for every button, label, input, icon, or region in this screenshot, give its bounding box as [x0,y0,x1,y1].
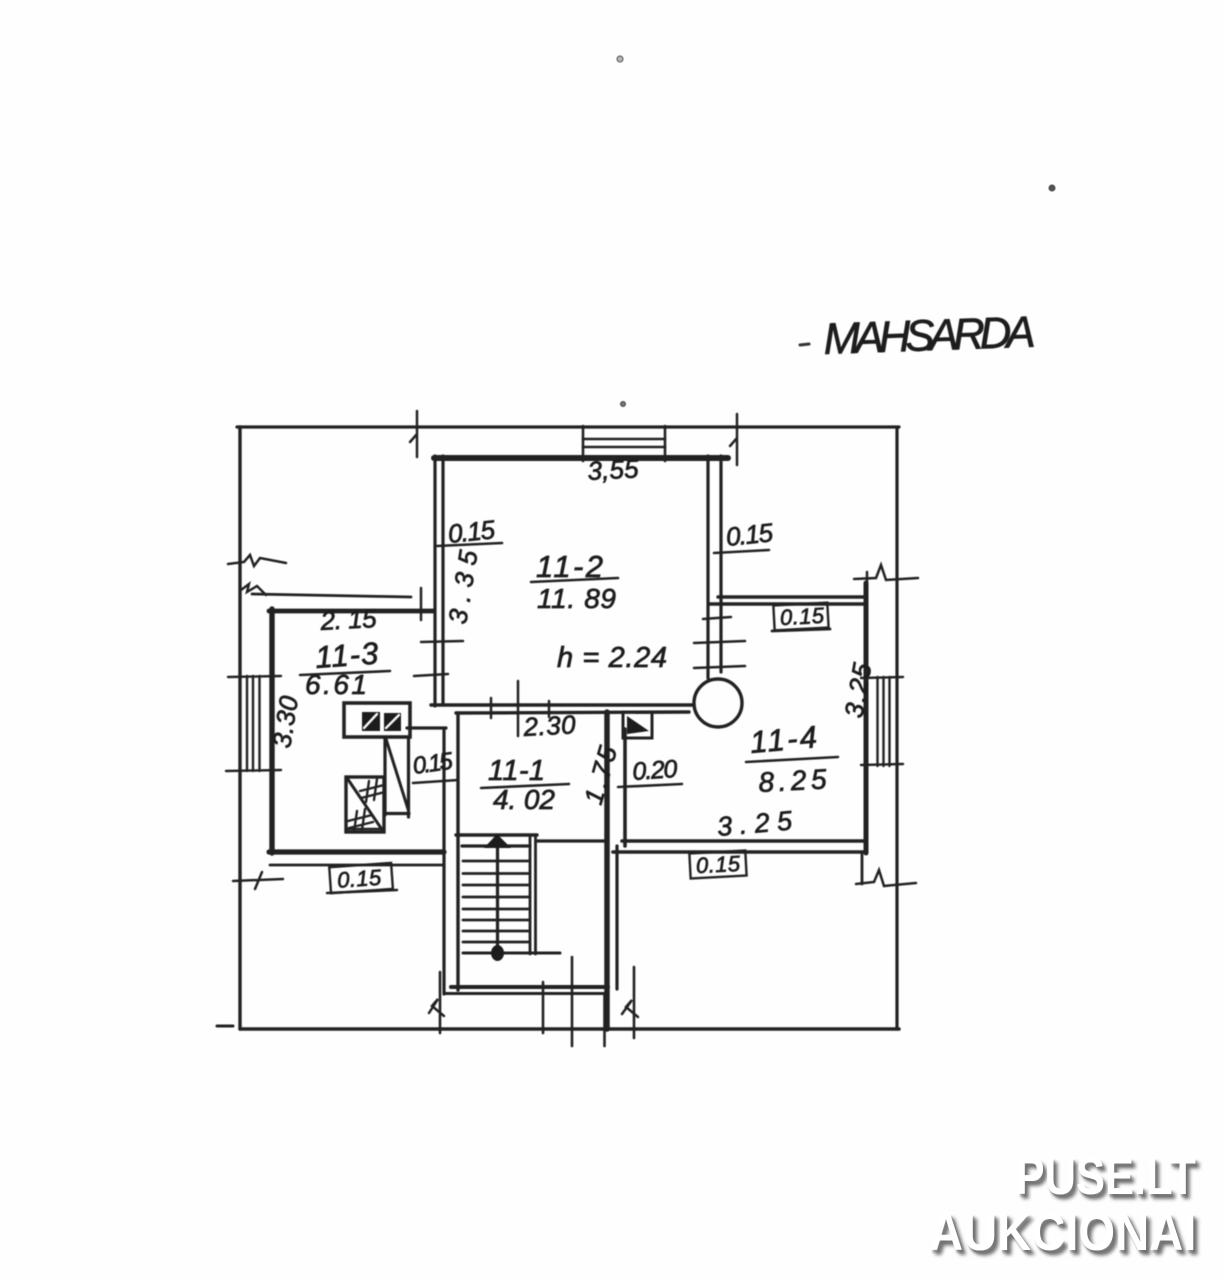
svg-text:0.15: 0.15 [411,748,455,780]
svg-text:1.75: 1.75 [578,742,623,807]
svg-text:8.25: 8.25 [758,763,828,798]
svg-text:0.15: 0.15 [779,603,825,630]
svg-text:0.15: 0.15 [695,851,741,878]
svg-text:6.61: 6.61 [305,669,367,700]
svg-text:0.15: 0.15 [336,865,382,893]
svg-text:11-4: 11-4 [749,719,819,760]
svg-text:2.30: 2.30 [522,709,577,742]
svg-text:3.25: 3.25 [716,805,794,842]
svg-text:3.35: 3.35 [442,548,483,626]
svg-text:11. 89: 11. 89 [537,583,616,614]
svg-text:4. 02: 4. 02 [493,784,555,815]
svg-text:11-1: 11-1 [488,755,545,787]
svg-text:2. 15: 2. 15 [319,603,378,636]
svg-text:h = 2.24: h = 2.24 [557,642,667,674]
svg-text:0.20: 0.20 [631,755,678,786]
svg-text:MAHSARDA: MAHSARDA [823,307,1041,364]
svg-text:0.15: 0.15 [724,517,774,552]
svg-text:3.25: 3.25 [838,660,877,720]
svg-text:3,55: 3,55 [587,453,640,486]
